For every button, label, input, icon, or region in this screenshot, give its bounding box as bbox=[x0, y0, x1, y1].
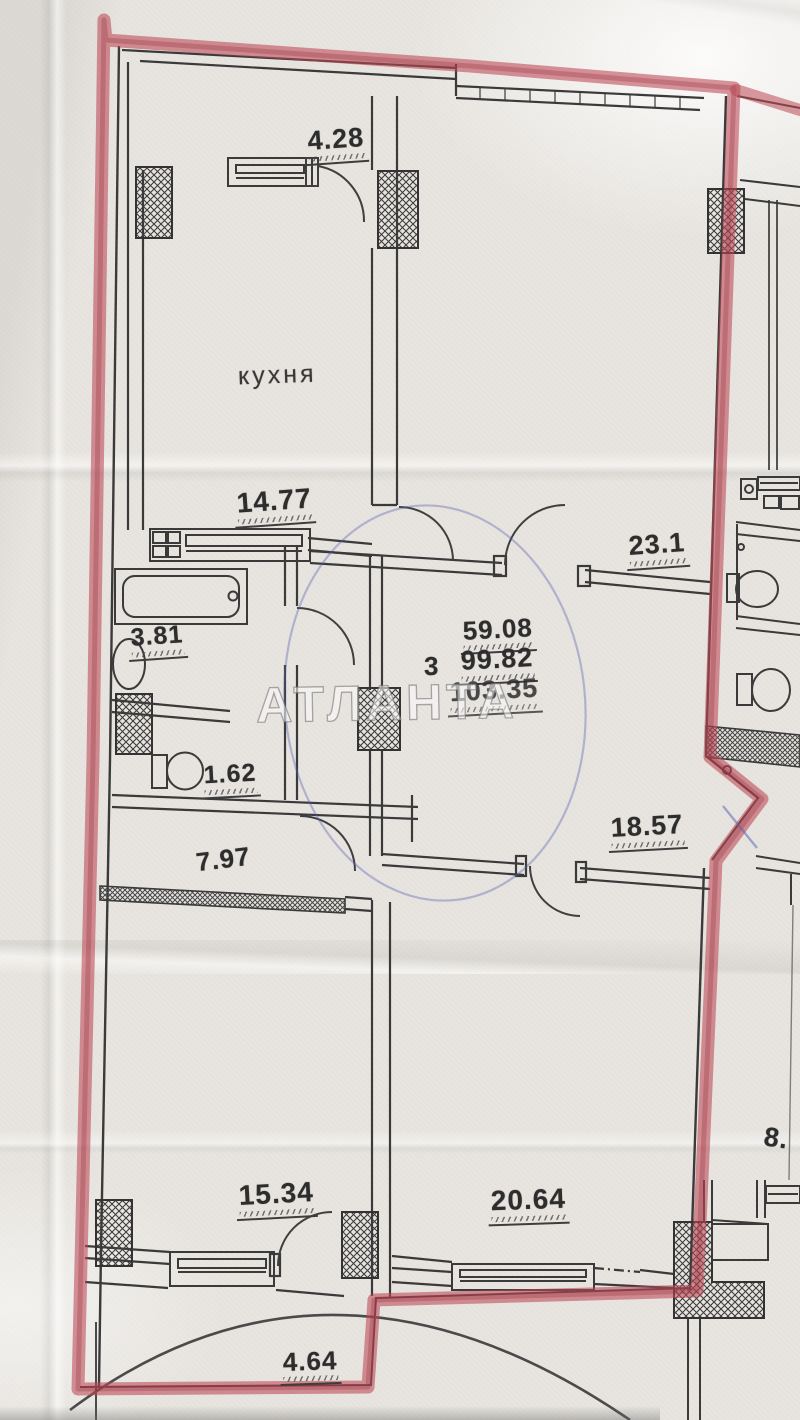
dimension-room-top-right: 23.1 bbox=[625, 529, 690, 571]
dimension-room-bottom-right: 20.64 bbox=[487, 1185, 569, 1227]
neighbor-counters bbox=[741, 477, 800, 509]
dimension-room-mid-right: 18.57 bbox=[607, 811, 687, 853]
kitchen-room-label: кухня bbox=[238, 362, 317, 390]
scanned-floor-plan: 4.28 кухня 14.77 23.1 3.81 3 59.08 99.82… bbox=[0, 0, 800, 1420]
paper-edge-shadow bbox=[0, 1406, 660, 1420]
dimension-top-width: 4.28 bbox=[304, 124, 369, 166]
agency-watermark: АТЛАНТА bbox=[256, 672, 519, 735]
dimension-wc: 1.62 bbox=[200, 760, 260, 799]
dimension-kitchen-area: 14.77 bbox=[233, 484, 317, 529]
bathtub bbox=[115, 569, 247, 624]
neighbor-partial-dimension: 8. bbox=[762, 1123, 790, 1153]
dimension-bathroom: 3.81 bbox=[127, 622, 188, 662]
hatched-wall-bands bbox=[100, 726, 800, 913]
toilet bbox=[152, 753, 203, 790]
door-knob-dot bbox=[738, 544, 744, 550]
window-ticks bbox=[480, 87, 680, 109]
dimension-balcony: 4.64 bbox=[279, 1347, 341, 1386]
fixtures bbox=[113, 477, 800, 790]
dimension-room-bottom-left: 15.34 bbox=[235, 1178, 318, 1221]
hatched-columns bbox=[96, 167, 764, 1318]
neighbor-toilet bbox=[737, 669, 790, 711]
dimension-hallway: 7.97 bbox=[195, 843, 252, 875]
neighbor-sink bbox=[727, 571, 778, 607]
terrace-arc bbox=[70, 1315, 630, 1420]
